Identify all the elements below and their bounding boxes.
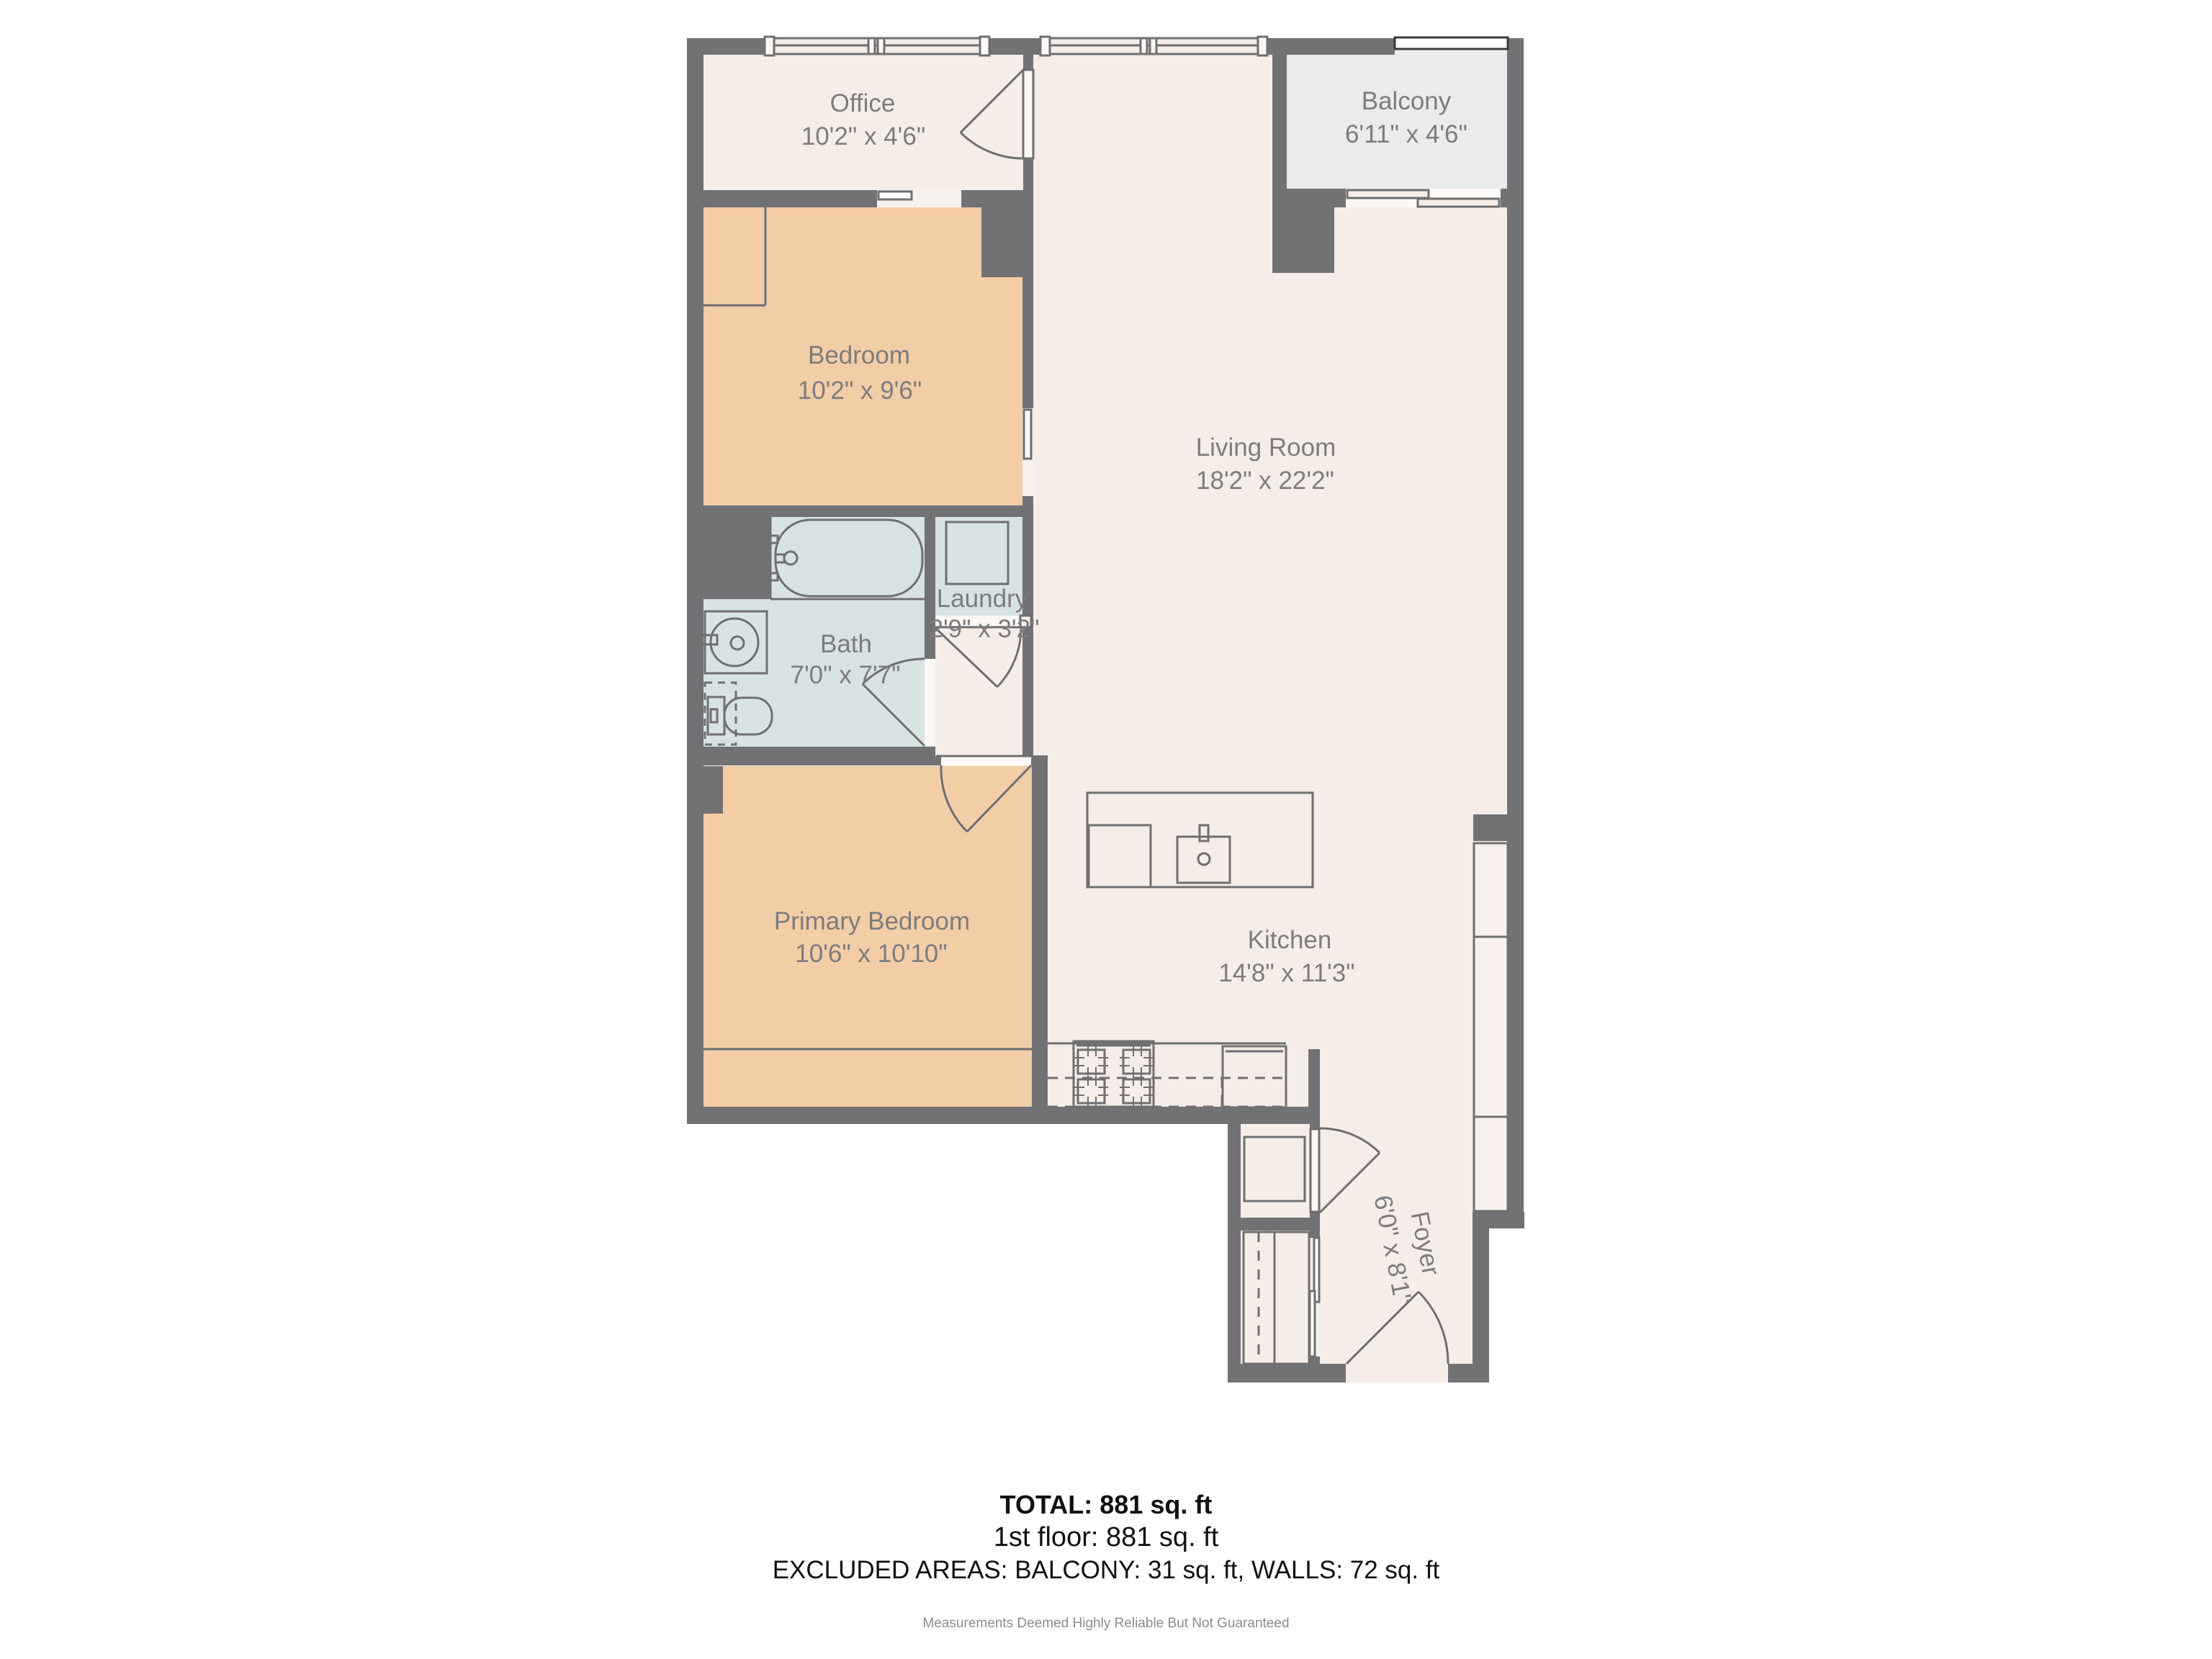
svg-text:14'8" x 11'3": 14'8" x 11'3" xyxy=(1218,959,1354,987)
svg-text:EXCLUDED AREAS: BALCONY: 31 sq: EXCLUDED AREAS: BALCONY: 31 sq. ft, WALL… xyxy=(773,1556,1440,1584)
svg-text:Office: Office xyxy=(830,89,896,117)
svg-text:18'2" x 22'2": 18'2" x 22'2" xyxy=(1196,467,1334,495)
svg-text:7'0" x 7'7": 7'0" x 7'7" xyxy=(790,661,900,689)
svg-text:2'9" x 3'2": 2'9" x 3'2" xyxy=(929,615,1039,643)
svg-text:TOTAL: 881 sq. ft: TOTAL: 881 sq. ft xyxy=(1000,1490,1213,1519)
svg-text:Primary Bedroom: Primary Bedroom xyxy=(774,907,970,935)
svg-text:Measurements Deemed Highly Rel: Measurements Deemed Highly Reliable But … xyxy=(922,1616,1289,1631)
svg-text:Bath: Bath xyxy=(820,630,872,658)
svg-text:1st floor: 881 sq. ft: 1st floor: 881 sq. ft xyxy=(994,1522,1219,1552)
svg-text:10'2" x 4'6": 10'2" x 4'6" xyxy=(801,122,926,150)
svg-text:Living Room: Living Room xyxy=(1196,433,1336,462)
svg-text:Kitchen: Kitchen xyxy=(1248,926,1332,954)
svg-text:6'11" x 4'6": 6'11" x 4'6" xyxy=(1345,120,1467,148)
svg-text:10'2" x 9'6": 10'2" x 9'6" xyxy=(798,377,922,405)
svg-text:10'6" x 10'10": 10'6" x 10'10" xyxy=(795,940,947,968)
svg-text:Laundry: Laundry xyxy=(937,585,1028,613)
svg-text:Balcony: Balcony xyxy=(1362,87,1452,115)
svg-text:Bedroom: Bedroom xyxy=(808,341,910,369)
